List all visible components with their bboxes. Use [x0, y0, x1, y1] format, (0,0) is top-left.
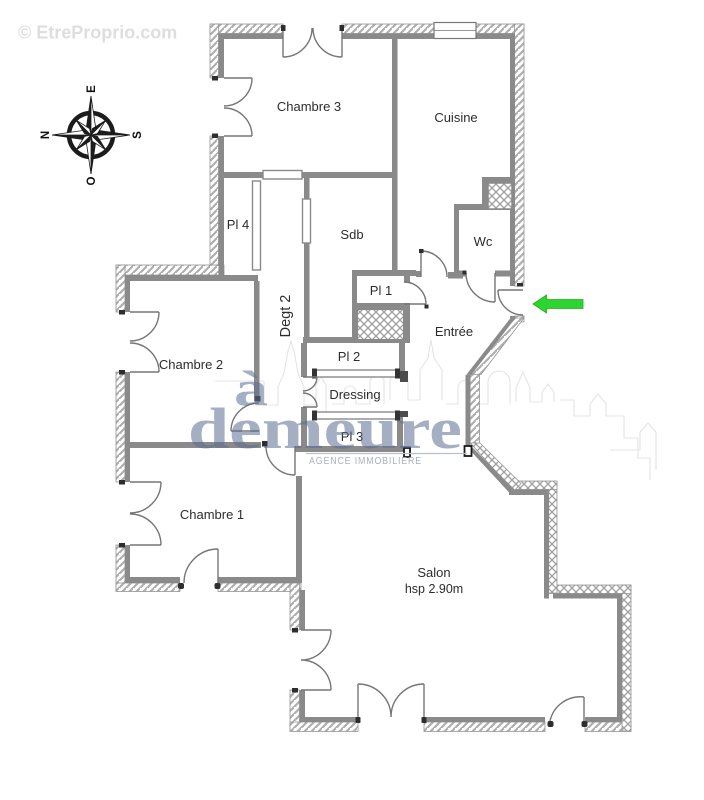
svg-text:Wc: Wc: [474, 234, 493, 249]
svg-text:Chambre 3: Chambre 3: [277, 99, 341, 114]
svg-text:Degt 2: Degt 2: [278, 295, 294, 338]
svg-text:Pl 1: Pl 1: [370, 283, 392, 298]
svg-text:N: N: [40, 131, 52, 139]
svg-text:Salon: Salon: [417, 565, 450, 580]
svg-text:E: E: [86, 85, 98, 93]
svg-text:AGENCE IMMOBILIERE: AGENCE IMMOBILIERE: [309, 455, 422, 467]
svg-text:demeure: demeure: [188, 396, 462, 461]
svg-text:Chambre 2: Chambre 2: [159, 357, 223, 372]
svg-text:© EtreProprio.com: © EtreProprio.com: [18, 23, 177, 43]
svg-text:S: S: [132, 131, 144, 139]
svg-text:Cuisine: Cuisine: [434, 110, 477, 125]
svg-text:O: O: [86, 176, 98, 185]
svg-text:hsp 2.90m: hsp 2.90m: [405, 582, 463, 596]
svg-text:Pl 4: Pl 4: [227, 217, 249, 232]
svg-text:Sdb: Sdb: [340, 227, 363, 242]
svg-text:Chambre 1: Chambre 1: [180, 507, 244, 522]
svg-text:Entrée: Entrée: [435, 324, 473, 339]
svg-text:Pl 2: Pl 2: [338, 349, 360, 364]
